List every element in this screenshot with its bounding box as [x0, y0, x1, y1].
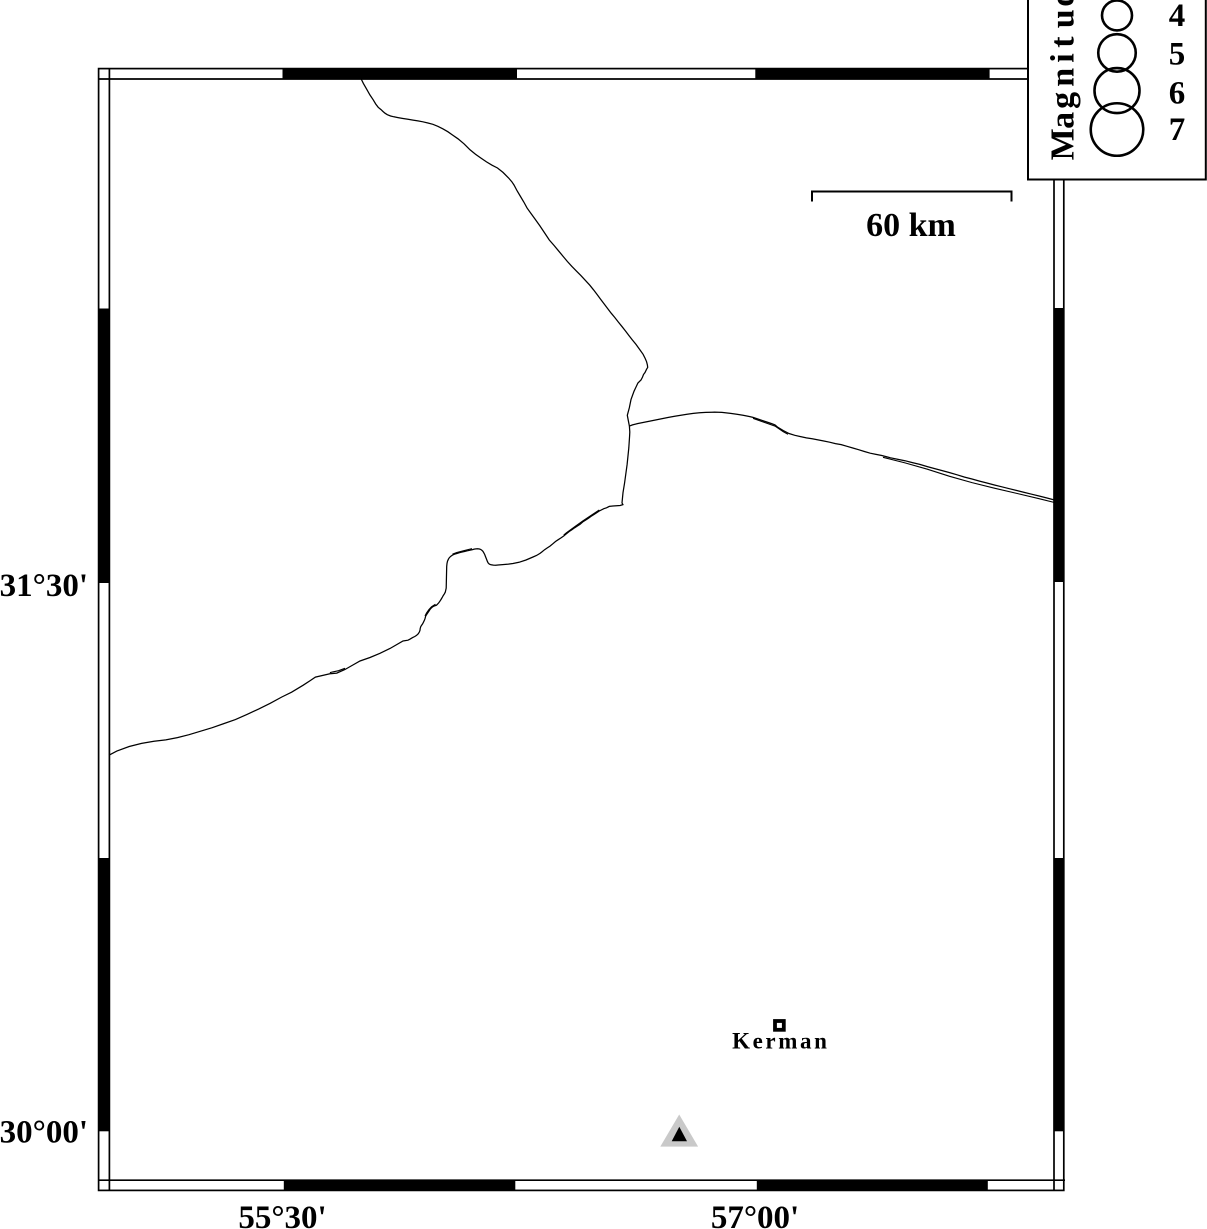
svg-text:60 km: 60 km — [866, 207, 956, 244]
svg-text:n: n — [1045, 68, 1082, 87]
svg-text:4: 4 — [1169, 0, 1186, 34]
svg-text:55°30': 55°30' — [238, 1200, 326, 1229]
svg-text:g: g — [1045, 92, 1082, 109]
svg-text:57°00': 57°00' — [711, 1200, 799, 1229]
svg-text:30°00': 30°00' — [0, 1115, 88, 1151]
svg-text:7: 7 — [1169, 112, 1186, 148]
svg-text:M: M — [1045, 128, 1082, 160]
svg-text:i: i — [1045, 53, 1082, 62]
svg-text:d: d — [1045, 0, 1082, 7]
svg-text:t: t — [1045, 36, 1082, 48]
svg-text:a: a — [1045, 112, 1082, 129]
svg-text:5: 5 — [1169, 36, 1186, 72]
svg-text:Kerman: Kerman — [732, 1029, 829, 1054]
svg-text:31°30': 31°30' — [0, 568, 88, 604]
svg-text:6: 6 — [1169, 75, 1186, 111]
svg-text:u: u — [1045, 9, 1082, 28]
